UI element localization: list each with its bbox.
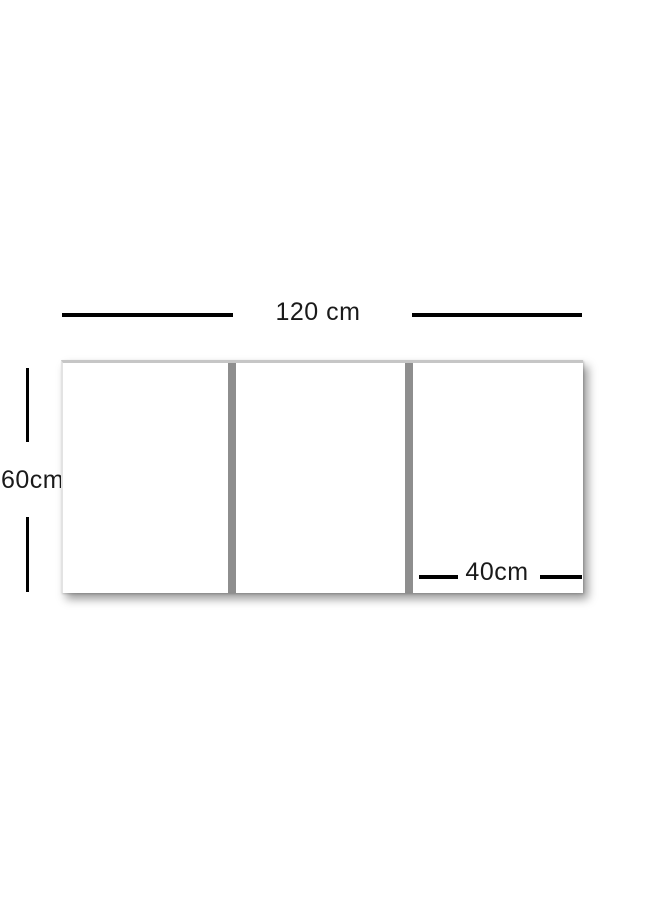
- panel-width-label: 40cm: [462, 560, 532, 585]
- panel-width-dimension-line-right: [540, 575, 582, 579]
- total-height-dimension-line-bottom: [26, 517, 29, 592]
- panel-2: [236, 363, 405, 593]
- total-height-dimension-line-top: [26, 368, 29, 442]
- total-width-label: 120 cm: [252, 300, 384, 325]
- panel-1: [63, 363, 228, 593]
- total-width-dimension-line-left: [62, 313, 233, 317]
- panel-width-dimension-line-left: [419, 575, 458, 579]
- total-height-label: 60cm: [1, 468, 61, 493]
- size-diagram: 120 cm 60cm 40cm: [0, 0, 660, 900]
- total-width-dimension-line-right: [412, 313, 582, 317]
